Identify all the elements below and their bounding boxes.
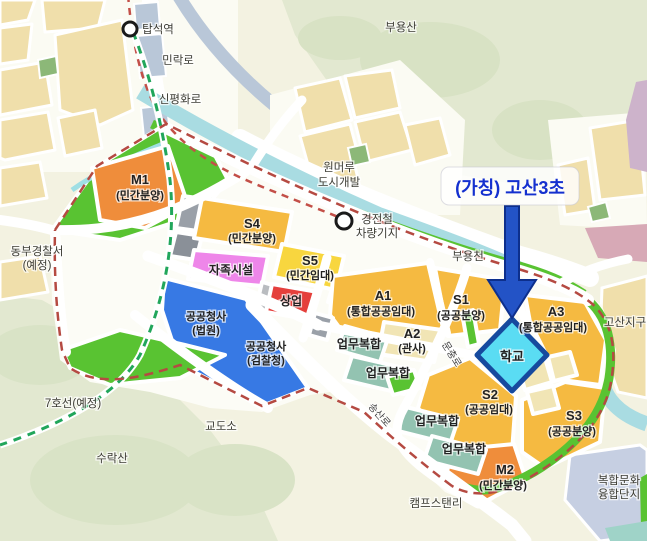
label-commercial: 상업 [280, 293, 302, 308]
label-culture-2: 융합단지 [598, 488, 640, 501]
label-a3-type: (통합공공임대) [519, 320, 587, 334]
label-culture-1: 복합문화 [598, 474, 641, 487]
label-buyongcheon: 부용천 [452, 249, 484, 263]
label-school: 학교 [500, 349, 524, 364]
label-a2-code: A2 [404, 326, 421, 341]
label-biz-4: 업무복합 [442, 441, 486, 456]
depot-station-marker [336, 213, 352, 229]
label-s1-code: S1 [453, 292, 469, 307]
label-wonmeoru-1: 원머루 [323, 160, 355, 174]
label-a3-code: A3 [548, 304, 565, 319]
map-canvas: 탑석역 민락로 신평화로 부용산 원머루 도시개발 경전철 차량기지 부용천 동… [0, 0, 647, 541]
label-wonmeoru-2: 도시개발 [318, 176, 361, 189]
label-gov1-2: (법원) [192, 323, 220, 337]
label-buyongsan: 부용산 [385, 21, 417, 34]
label-prison: 교도소 [205, 420, 237, 433]
label-depot-2: 차량기지 [356, 227, 398, 240]
label-gov1-1: 공공청사 [186, 309, 227, 323]
label-s4-type: (민간분양) [228, 231, 276, 245]
label-camp-stanley: 캠프스탠리 [410, 497, 463, 510]
label-depot-1: 경전철 [361, 212, 393, 226]
label-s4-code: S4 [244, 216, 261, 231]
callout-label: (가칭) 고산3초 [455, 178, 565, 198]
label-biz-3: 업무복합 [415, 413, 459, 428]
label-road-minrak: 민락로 [162, 54, 194, 67]
label-gosan-district: 고산지구 [604, 316, 646, 329]
label-s5-type: (민간임대) [286, 268, 334, 282]
label-s3-type: (공공분양) [548, 424, 596, 438]
label-biz-1: 업무복합 [337, 336, 381, 351]
label-s2-code: S2 [482, 387, 498, 402]
label-a2-type: (관사) [398, 341, 426, 355]
label-a1-type: (통합공공임대) [347, 304, 415, 318]
label-gov2-2: (검찰청) [247, 353, 285, 367]
zoning-map: 탑석역 민락로 신평화로 부용산 원머루 도시개발 경전철 차량기지 부용천 동… [0, 0, 647, 541]
label-s3-code: S3 [566, 408, 582, 423]
parcel-cream-3 [527, 386, 559, 414]
label-police-2: (예정) [23, 259, 52, 272]
label-jajok: 자족시설 [209, 262, 253, 277]
label-gov2-1: 공공청사 [246, 339, 287, 353]
label-road-sinpyeonghwa: 신평화로 [159, 93, 201, 106]
label-s2-type: (공공임대) [465, 402, 513, 416]
label-tapseok-station: 탑석역 [142, 23, 174, 36]
label-m1-code: M1 [131, 172, 149, 187]
label-m2-type: (민간분양) [479, 478, 527, 492]
label-line7: 7호선(예정) [45, 397, 102, 410]
label-m2-code: M2 [496, 462, 514, 477]
label-s1-type: (공공분양) [437, 308, 485, 322]
label-a1-code: A1 [375, 288, 392, 303]
label-police-1: 동부경찰서 [11, 244, 64, 258]
parcel-cream-2 [548, 352, 577, 381]
label-suraksan: 수락산 [96, 452, 128, 465]
label-s5-code: S5 [302, 253, 318, 268]
tapseok-station-marker [123, 22, 137, 36]
label-biz-2: 업무복합 [366, 365, 410, 380]
label-m1-type: (민간분양) [116, 188, 164, 202]
